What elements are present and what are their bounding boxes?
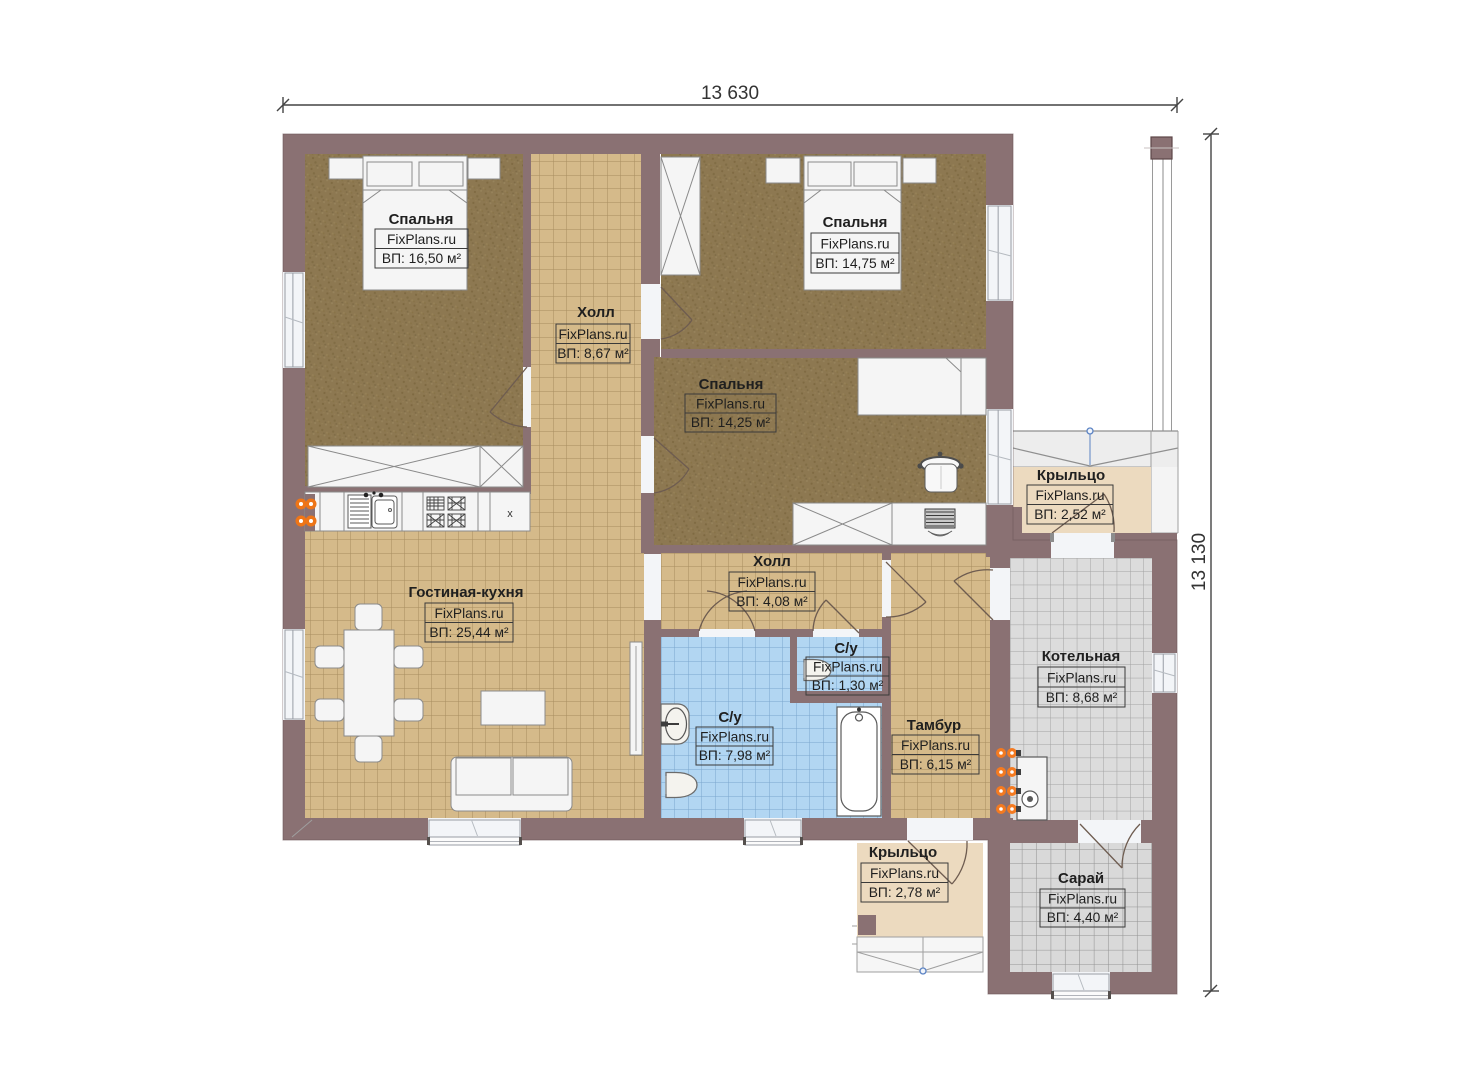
svg-text:FixPlans.ru: FixPlans.ru [1048, 892, 1117, 907]
svg-text:FixPlans.ru: FixPlans.ru [813, 660, 882, 675]
svg-text:С/у: С/у [718, 709, 742, 726]
svg-text:FixPlans.ru: FixPlans.ru [700, 730, 769, 745]
svg-text:ВП: 8,68 м²: ВП: 8,68 м² [1046, 690, 1118, 705]
svg-text:FixPlans.ru: FixPlans.ru [737, 575, 806, 590]
svg-text:Сарай: Сарай [1058, 870, 1104, 887]
svg-text:ВП: 2,78 м²: ВП: 2,78 м² [869, 885, 941, 900]
svg-text:ВП: 4,40 м²: ВП: 4,40 м² [1047, 910, 1119, 925]
svg-text:Холл: Холл [577, 304, 615, 321]
svg-text:Тамбур: Тамбур [907, 717, 961, 734]
svg-text:Гостиная-кухня: Гостиная-кухня [409, 584, 524, 601]
svg-text:Спальня: Спальня [389, 211, 454, 228]
svg-text:Крыльцо: Крыльцо [869, 844, 937, 861]
svg-text:Спальня: Спальня [699, 376, 764, 393]
svg-text:FixPlans.ru: FixPlans.ru [696, 397, 765, 412]
svg-text:ВП: 1,30 м²: ВП: 1,30 м² [812, 678, 884, 693]
svg-text:ВП: 25,44 м²: ВП: 25,44 м² [429, 625, 509, 640]
svg-text:FixPlans.ru: FixPlans.ru [870, 866, 939, 881]
svg-text:FixPlans.ru: FixPlans.ru [901, 738, 970, 753]
svg-text:Холл: Холл [753, 553, 791, 570]
svg-text:ВП: 2,52 м²: ВП: 2,52 м² [1034, 507, 1106, 522]
svg-text:FixPlans.ru: FixPlans.ru [558, 327, 627, 342]
svg-text:FixPlans.ru: FixPlans.ru [387, 232, 456, 247]
svg-text:13 130: 13 130 [1189, 533, 1210, 591]
svg-text:FixPlans.ru: FixPlans.ru [1035, 488, 1104, 503]
svg-text:ВП: 7,98 м²: ВП: 7,98 м² [699, 748, 771, 763]
svg-text:С/у: С/у [834, 640, 858, 657]
svg-text:FixPlans.ru: FixPlans.ru [434, 606, 503, 621]
svg-text:13 630: 13 630 [701, 83, 759, 104]
svg-text:ВП: 14,25 м²: ВП: 14,25 м² [691, 415, 771, 430]
svg-text:Крыльцо: Крыльцо [1037, 467, 1105, 484]
svg-text:x: x [507, 508, 513, 520]
svg-text:ВП: 8,67 м²: ВП: 8,67 м² [557, 346, 629, 361]
svg-text:ВП: 14,75 м²: ВП: 14,75 м² [815, 256, 895, 271]
svg-text:ВП: 4,08 м²: ВП: 4,08 м² [736, 594, 808, 609]
svg-text:FixPlans.ru: FixPlans.ru [1047, 671, 1116, 686]
svg-text:ВП: 16,50 м²: ВП: 16,50 м² [382, 251, 462, 266]
svg-text:Котельная: Котельная [1042, 648, 1121, 665]
svg-text:Спальня: Спальня [823, 214, 888, 231]
svg-text:ВП: 6,15 м²: ВП: 6,15 м² [900, 757, 972, 772]
svg-text:FixPlans.ru: FixPlans.ru [820, 237, 889, 252]
